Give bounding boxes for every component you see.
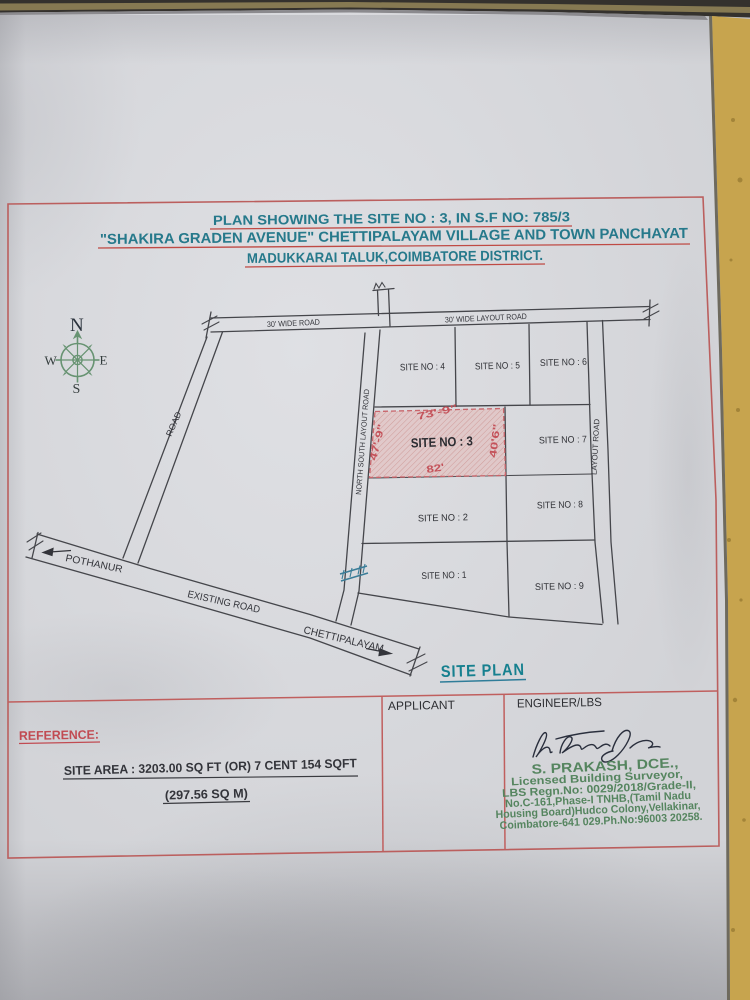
svg-text:APPLICANT: APPLICANT — [388, 698, 456, 713]
svg-text:SITE PLAN: SITE PLAN — [441, 661, 525, 681]
svg-text:SITE NO : 7: SITE NO : 7 — [539, 434, 587, 446]
svg-text:SITE NO : 9: SITE NO : 9 — [535, 581, 584, 593]
svg-text:SITE NO : 1: SITE NO : 1 — [421, 570, 466, 582]
svg-text:E: E — [100, 353, 108, 368]
svg-text:SITE NO : 8: SITE NO : 8 — [537, 499, 583, 511]
svg-text:SITE NO : 5: SITE NO : 5 — [475, 360, 520, 372]
svg-text:(297.56 SQ M): (297.56 SQ M) — [165, 786, 248, 802]
svg-text:REFERENCE:: REFERENCE: — [19, 728, 99, 743]
svg-text:N: N — [70, 315, 84, 336]
svg-text:ENGINEER/LBS: ENGINEER/LBS — [517, 695, 602, 710]
svg-text:W: W — [45, 353, 58, 368]
svg-text:SITE NO : 6: SITE NO : 6 — [540, 357, 587, 369]
svg-text:SITE NO : 2: SITE NO : 2 — [418, 512, 468, 524]
svg-text:S: S — [73, 382, 81, 397]
svg-text:MADUKKARAI TALUK,COIMBATORE DI: MADUKKARAI TALUK,COIMBATORE DISTRICT. — [247, 247, 543, 266]
svg-text:SITE NO : 3: SITE NO : 3 — [411, 433, 473, 450]
svg-text:SITE NO : 4: SITE NO : 4 — [400, 361, 445, 373]
